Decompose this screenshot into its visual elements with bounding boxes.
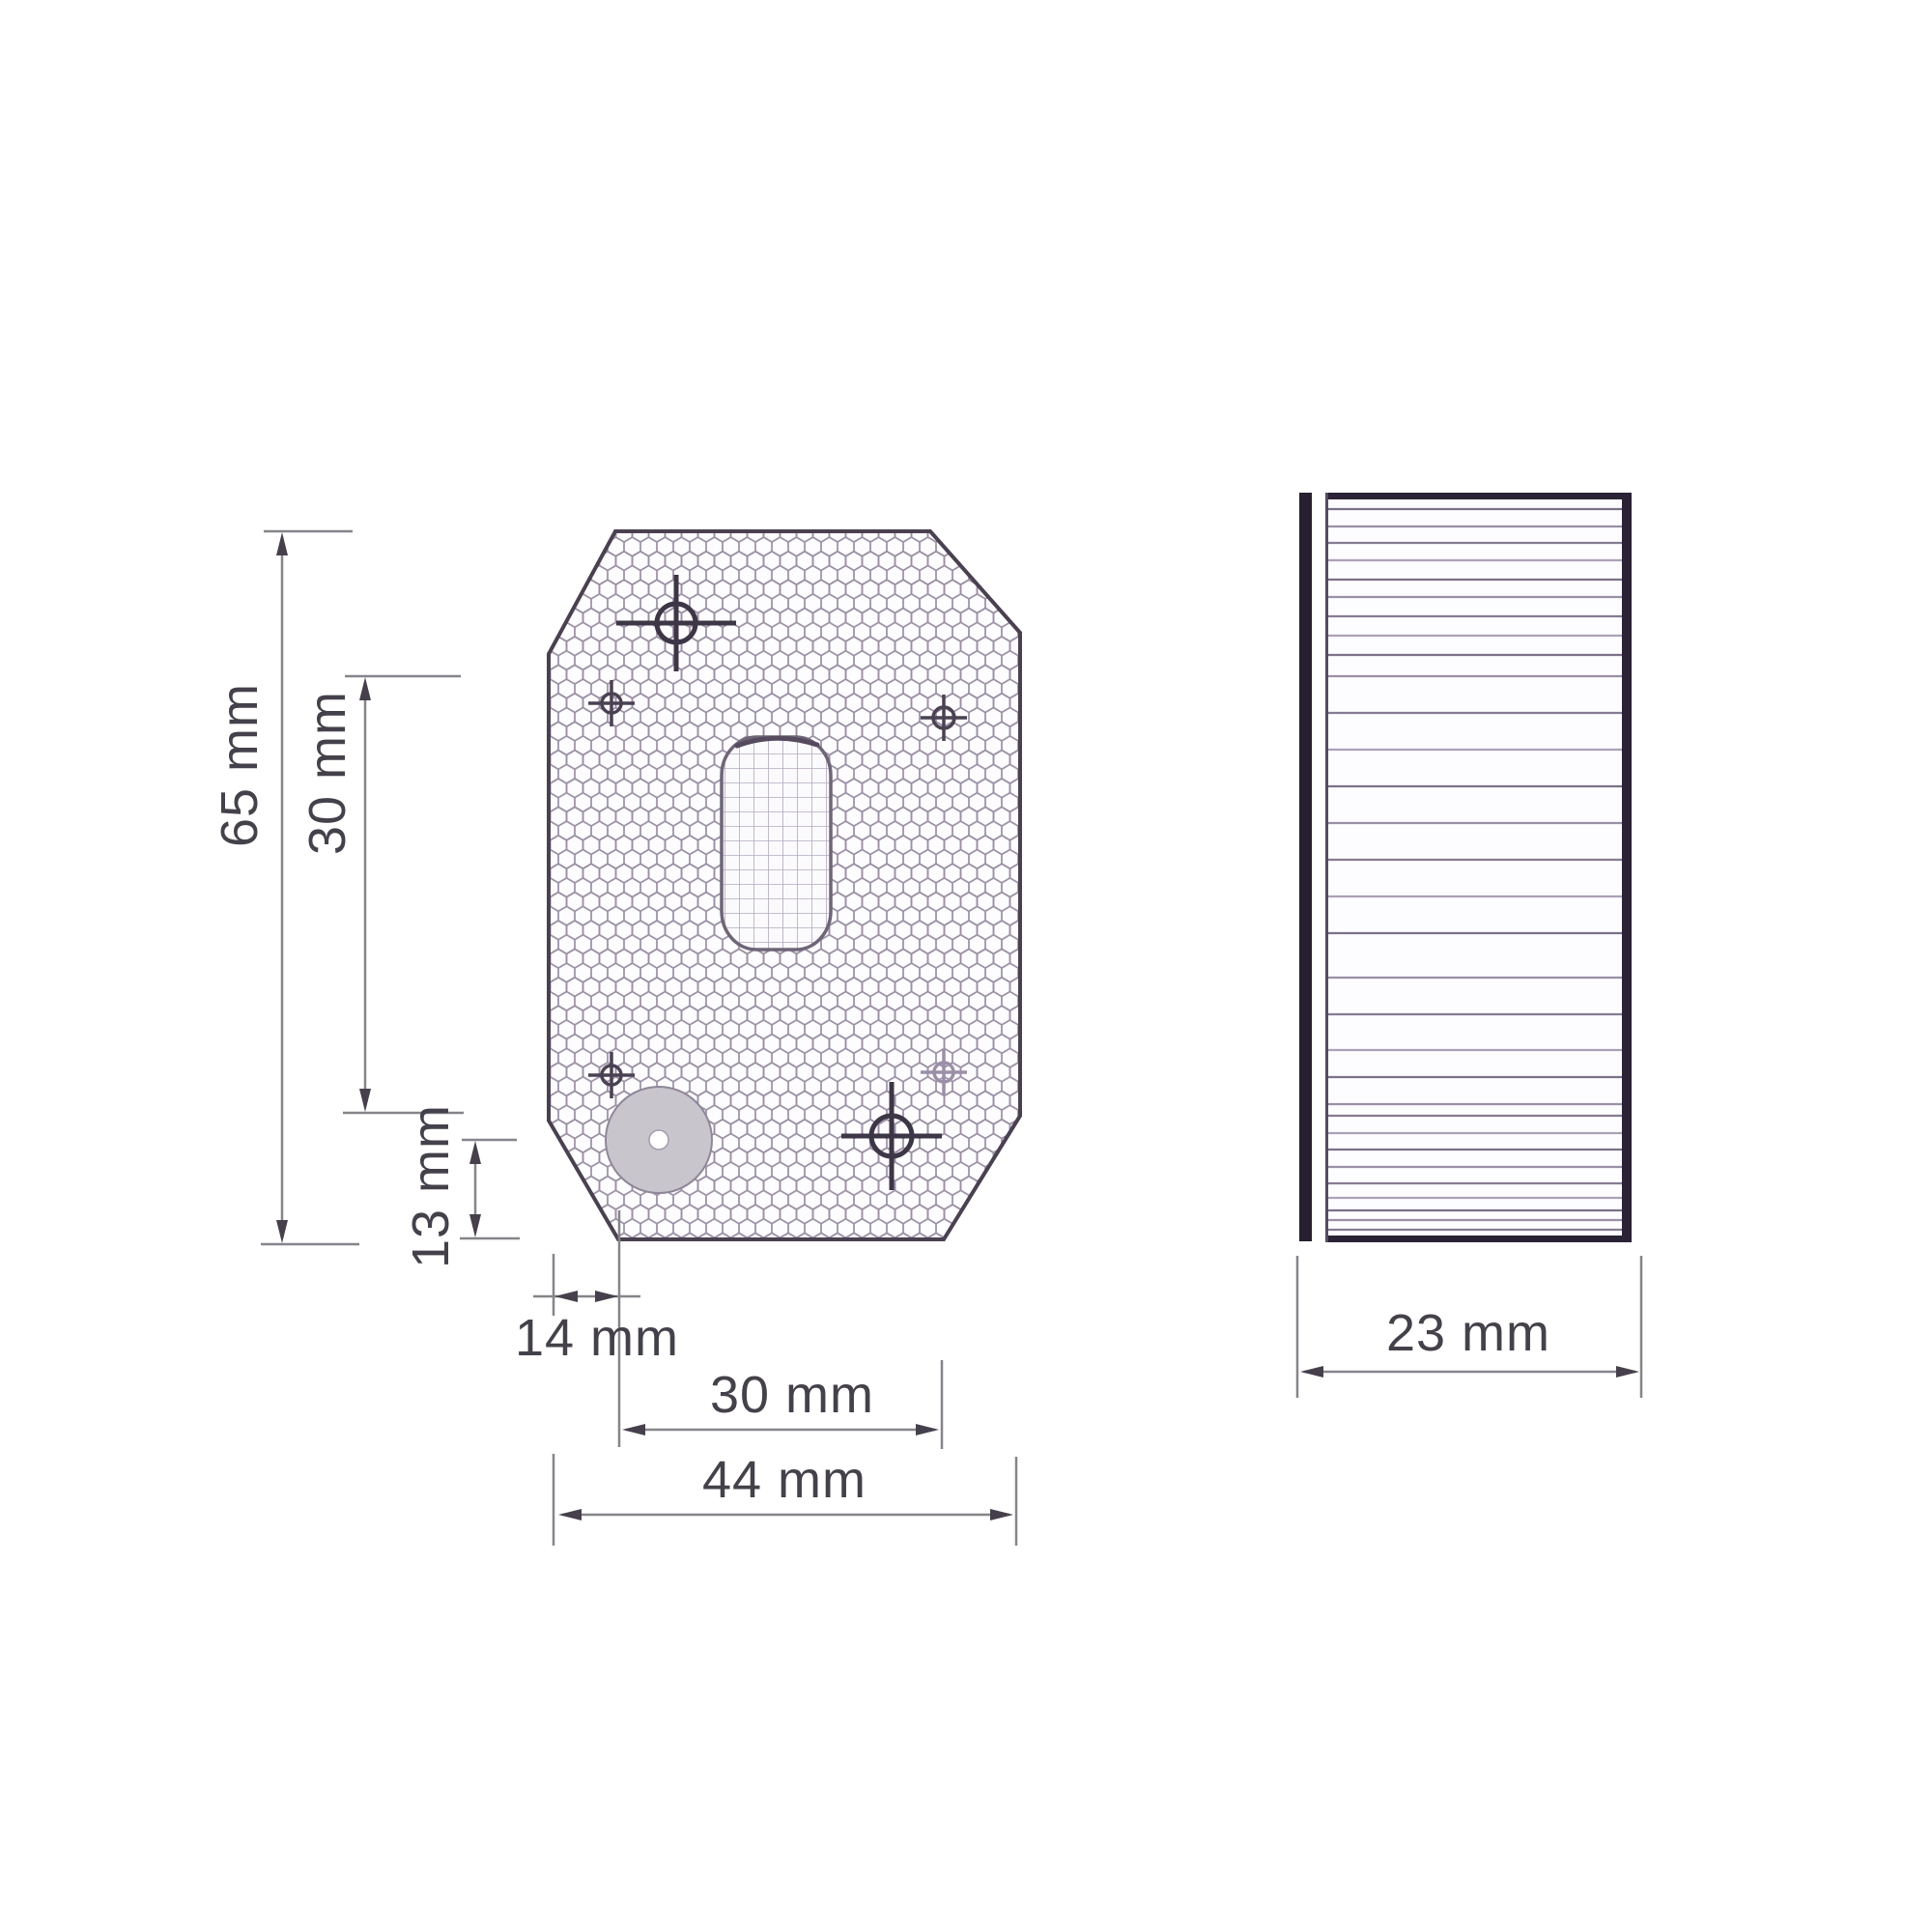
side-front-lens-bar [1299,493,1312,1241]
dim-30mm-left [343,676,464,1113]
side-border-bottom [1325,1236,1628,1242]
dim-65mm [261,531,359,1244]
label-44mm: 44 mm [702,1451,867,1509]
label-30mm-bottom: 30 mm [710,1366,874,1424]
side-border-left [1325,493,1328,1242]
disc-emblem [606,1087,712,1193]
label-23mm: 23 mm [1386,1304,1550,1362]
side-border-right [1622,493,1632,1242]
label-30mm-left: 30 mm [298,691,356,855]
front-view [549,531,1020,1239]
side-border-top [1325,493,1628,499]
dim-13mm [460,1140,520,1238]
label-14mm: 14 mm [515,1309,679,1367]
label-65mm: 65 mm [211,683,269,847]
center-window [722,737,831,950]
disc-center-hole [649,1130,668,1150]
label-13mm: 13 mm [402,1104,460,1268]
side-view [1299,493,1632,1242]
drawing-canvas: 65 mm 30 mm 13 mm 14 mm 30 mm 44 mm 23 m… [0,0,1932,1932]
side-body [1325,493,1628,1241]
technical-drawing: 65 mm 30 mm 13 mm 14 mm 30 mm 44 mm 23 m… [0,0,1932,1932]
